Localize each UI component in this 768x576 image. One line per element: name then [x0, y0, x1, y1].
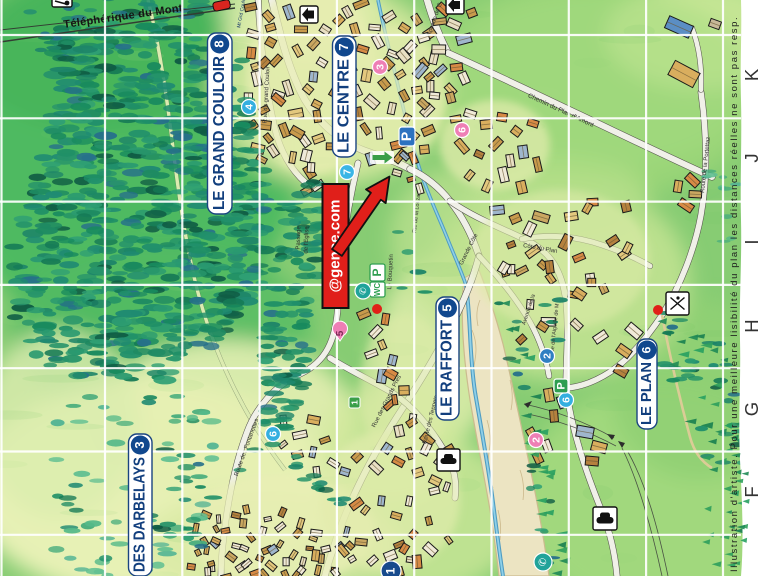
- svg-text:7: 7: [341, 169, 353, 175]
- svg-text:5: 5: [335, 330, 346, 336]
- svg-text:6: 6: [456, 127, 468, 133]
- svg-text:✆: ✆: [538, 558, 549, 566]
- svg-text:LE CENTRE: LE CENTRE: [335, 59, 352, 153]
- svg-text:LE PLAN: LE PLAN: [639, 362, 655, 425]
- svg-text:6: 6: [640, 346, 654, 353]
- svg-text:6: 6: [267, 431, 279, 437]
- svg-text:2: 2: [530, 437, 542, 443]
- svg-text:G: G: [741, 402, 762, 416]
- svg-text:DES DARBELAYS: DES DARBELAYS: [131, 457, 148, 572]
- svg-text:1: 1: [349, 400, 359, 405]
- svg-text:P: P: [398, 132, 414, 141]
- svg-text:8: 8: [212, 40, 227, 47]
- svg-text:3: 3: [374, 64, 386, 70]
- svg-text:3: 3: [132, 441, 147, 448]
- svg-text:LE GRAND COULOIR: LE GRAND COULOIR: [211, 56, 228, 210]
- svg-text:Passage: Passage: [296, 226, 303, 250]
- svg-text:WC: WC: [373, 283, 382, 297]
- svg-text:1: 1: [384, 567, 398, 574]
- svg-text:H: H: [741, 319, 762, 332]
- svg-text:K: K: [741, 68, 762, 81]
- svg-text:4: 4: [243, 104, 255, 110]
- svg-text:7: 7: [336, 43, 351, 50]
- svg-text:J: J: [741, 153, 762, 162]
- svg-text:I: I: [741, 239, 762, 244]
- svg-text:P: P: [370, 268, 384, 276]
- svg-text:5: 5: [439, 304, 454, 311]
- svg-text:de l'Eglise: de l'Eglise: [304, 226, 311, 254]
- svg-text:F: F: [741, 486, 762, 497]
- svg-text:P: P: [555, 382, 567, 389]
- svg-text:Illustration d'artiste. Pour u: Illustration d'artiste. Pour une meilleu…: [729, 16, 740, 572]
- svg-text:6: 6: [560, 397, 572, 403]
- svg-text:LE RAFFORT: LE RAFFORT: [439, 320, 456, 416]
- svg-text:✆: ✆: [358, 287, 368, 295]
- svg-text:2: 2: [541, 353, 553, 359]
